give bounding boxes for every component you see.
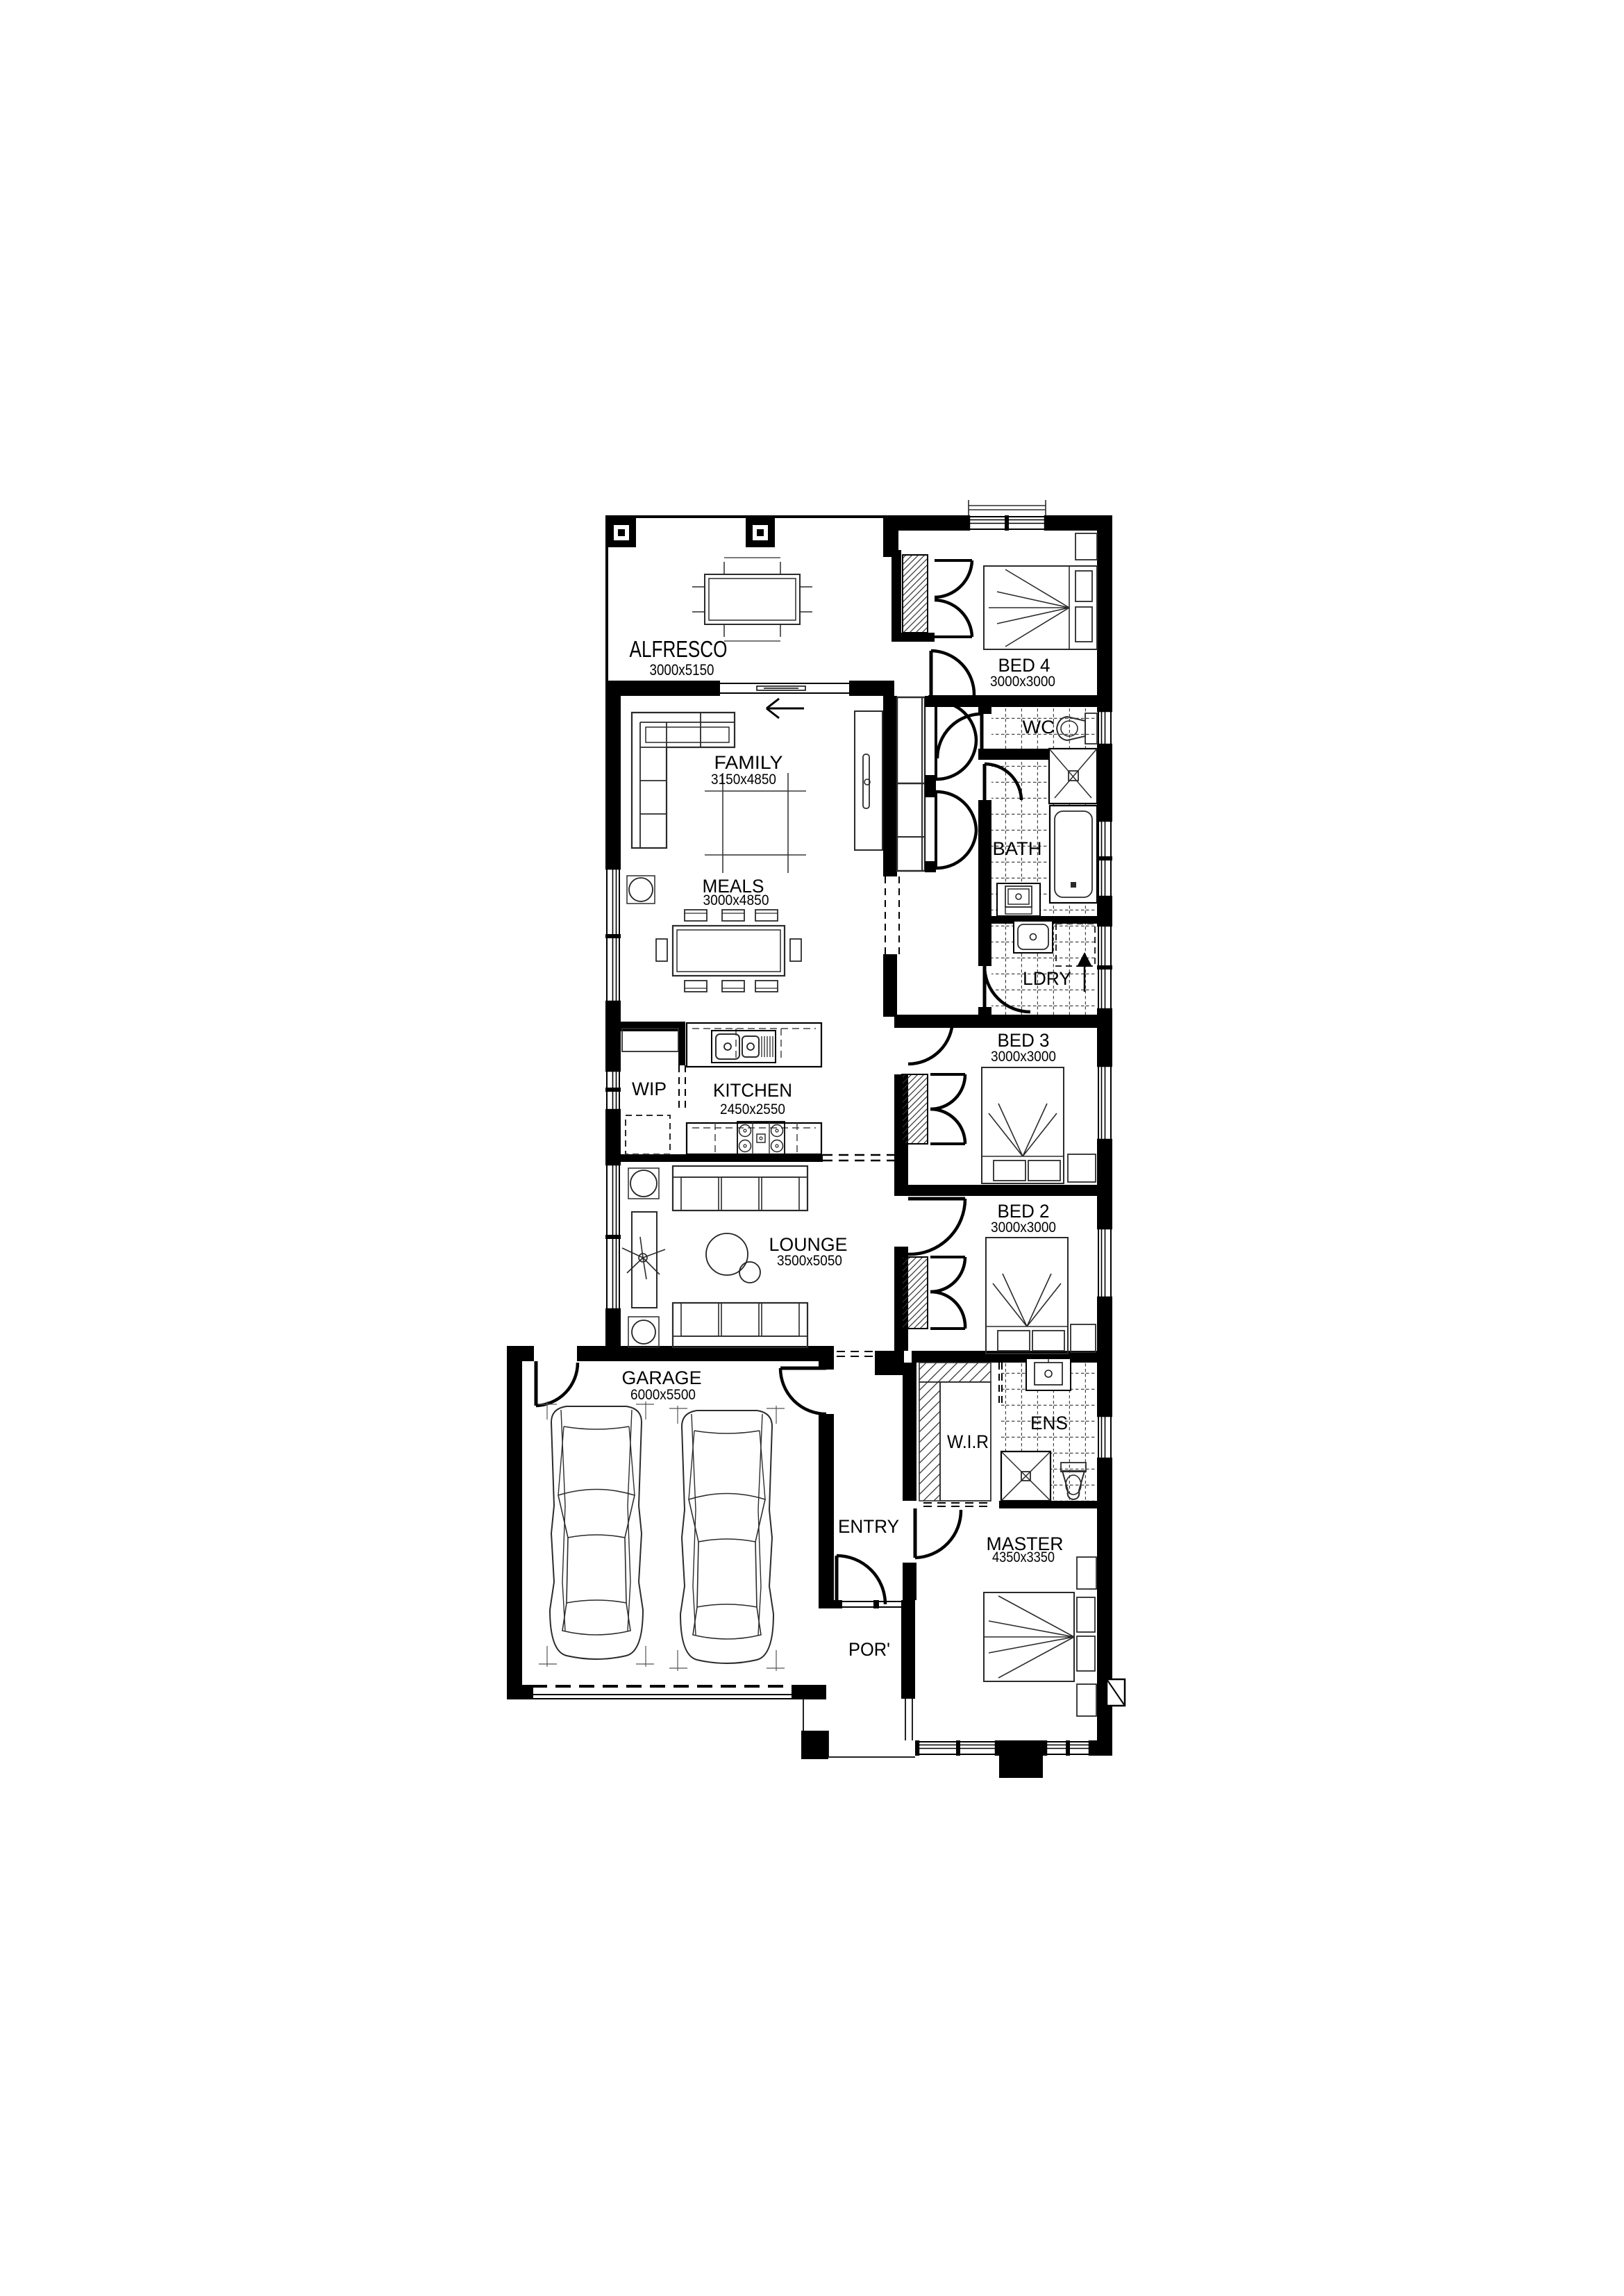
svg-text:ENTRY: ENTRY [838,1516,899,1537]
svg-text:GARAGE: GARAGE [622,1367,702,1388]
svg-text:W.I.R: W.I.R [947,1431,989,1452]
svg-text:LOUNGE: LOUNGE [769,1234,848,1255]
svg-text:ALFRESCO: ALFRESCO [630,636,728,662]
svg-text:BED 3: BED 3 [998,1030,1050,1051]
svg-text:WIP: WIP [632,1079,667,1099]
svg-text:BED 2: BED 2 [998,1201,1050,1222]
svg-text:KITCHEN: KITCHEN [713,1080,792,1101]
svg-text:3150x4850: 3150x4850 [711,772,776,788]
svg-text:BATH: BATH [993,838,1042,859]
svg-text:WC: WC [1023,717,1055,738]
svg-text:3000x3000: 3000x3000 [991,1049,1056,1065]
svg-text:3000x4850: 3000x4850 [703,892,769,908]
svg-text:4350x3350: 4350x3350 [992,1549,1055,1565]
svg-text:FAMILY: FAMILY [714,752,783,773]
svg-text:BED 4: BED 4 [998,655,1050,676]
svg-text:2450x2550: 2450x2550 [720,1101,785,1117]
svg-text:3000x3000: 3000x3000 [991,1220,1056,1236]
svg-text:6000x5500: 6000x5500 [630,1387,696,1403]
svg-text:LDRY: LDRY [1023,968,1071,989]
svg-text:POR': POR' [848,1639,890,1660]
svg-text:3000x5150: 3000x5150 [650,661,714,679]
svg-text:3500x5050: 3500x5050 [777,1253,842,1269]
svg-text:3000x3000: 3000x3000 [990,674,1055,690]
svg-text:ENS: ENS [1030,1413,1068,1433]
